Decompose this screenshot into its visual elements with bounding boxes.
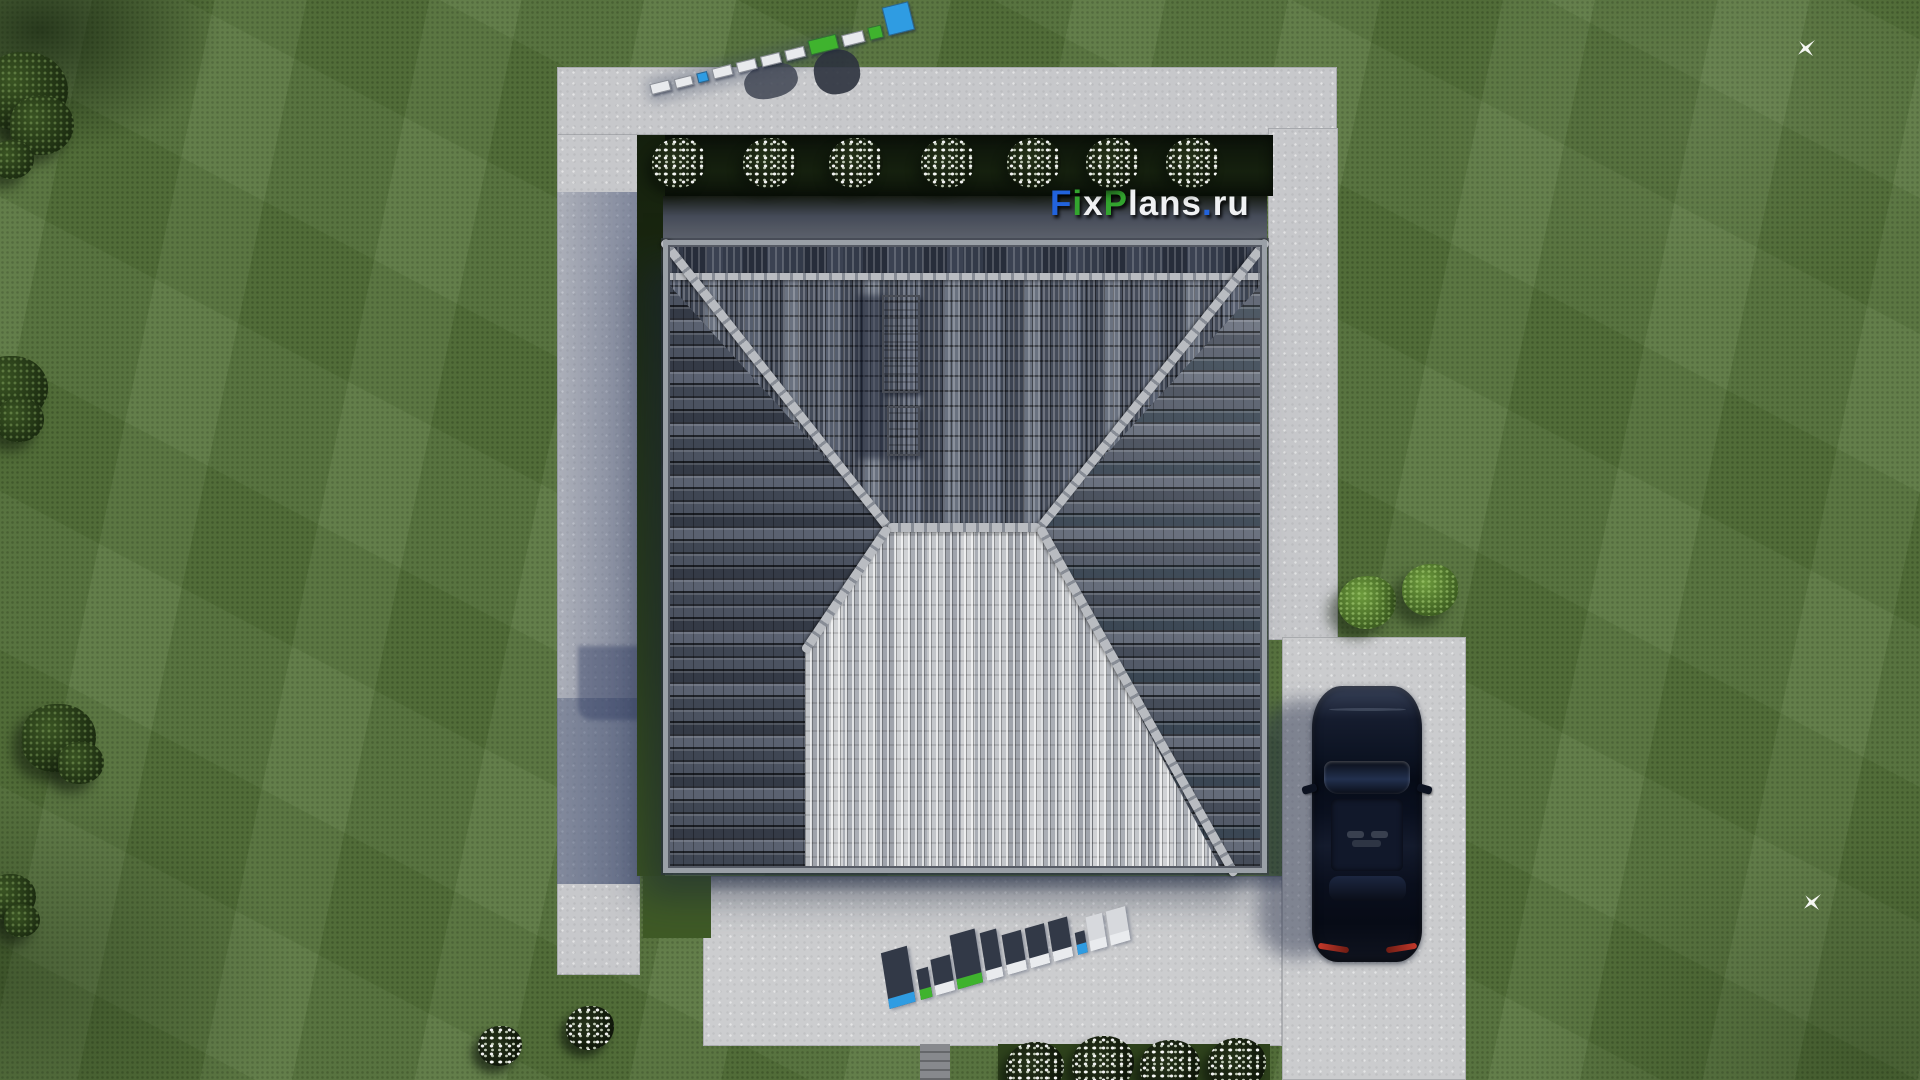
car-seat [1371, 831, 1388, 837]
watermark-letter-slab [916, 967, 932, 1000]
brand-logo: FixPlans.ru [1050, 184, 1250, 224]
watermark-letter-slab [1075, 930, 1088, 955]
watermark-letter-top [882, 1, 915, 36]
eaves-trim [663, 240, 1267, 873]
watermark-letter-slab [980, 929, 1004, 981]
flowering-bush [1140, 1040, 1200, 1080]
dark-tree [4, 904, 40, 937]
watermark-letter-top [841, 30, 865, 47]
watermark-letter-slab [930, 954, 955, 995]
flowering-bush [478, 1026, 522, 1066]
grass-bed-bottom-left [643, 876, 711, 938]
car-rear-seat [1352, 840, 1381, 846]
house-shadow-deep [557, 698, 640, 884]
eaves-shadow [703, 876, 1282, 894]
brand-logo-letters: . [1202, 184, 1213, 223]
green-bush [1402, 564, 1458, 616]
flowering-bush [566, 1006, 614, 1050]
aerial-house-render: FixPlans.ru [0, 0, 1920, 1080]
flowering-bush [1072, 1036, 1134, 1080]
white-bird [1804, 894, 1821, 910]
flowering-bush [1006, 1042, 1064, 1080]
watermark-letter-slab [950, 928, 984, 989]
brand-logo-letters: i [1072, 184, 1083, 223]
flowering-bush [1208, 1038, 1266, 1080]
watermark-letter-slab [1048, 917, 1074, 962]
dark-tree [0, 398, 44, 442]
watermark-letter-slab [1002, 930, 1028, 975]
paver-steps-dark [920, 1044, 950, 1080]
dark-tree [0, 140, 34, 179]
brand-logo-letters: F [1050, 184, 1072, 223]
house-roof [663, 240, 1267, 873]
white-bird [1798, 40, 1815, 56]
brand-logo-letters: x [1083, 184, 1103, 223]
parked-car [1312, 686, 1422, 962]
car-rear-window [1329, 876, 1406, 901]
car-windshield [1324, 761, 1410, 794]
car-seat [1347, 831, 1364, 837]
watermark-letter-slab [1025, 923, 1051, 968]
brand-logo-letters: lans [1128, 184, 1202, 223]
house-shadow-notch [578, 646, 640, 720]
green-bush [1338, 576, 1396, 629]
brand-logo-letters: P [1104, 184, 1128, 223]
car-roof-glass [1331, 799, 1404, 871]
watermark-letter-slab [1086, 913, 1108, 952]
walkway-right [1268, 128, 1338, 640]
brand-logo-letters: ru [1213, 184, 1250, 223]
watermark-letter-top [867, 25, 884, 41]
dark-tree [58, 742, 104, 784]
